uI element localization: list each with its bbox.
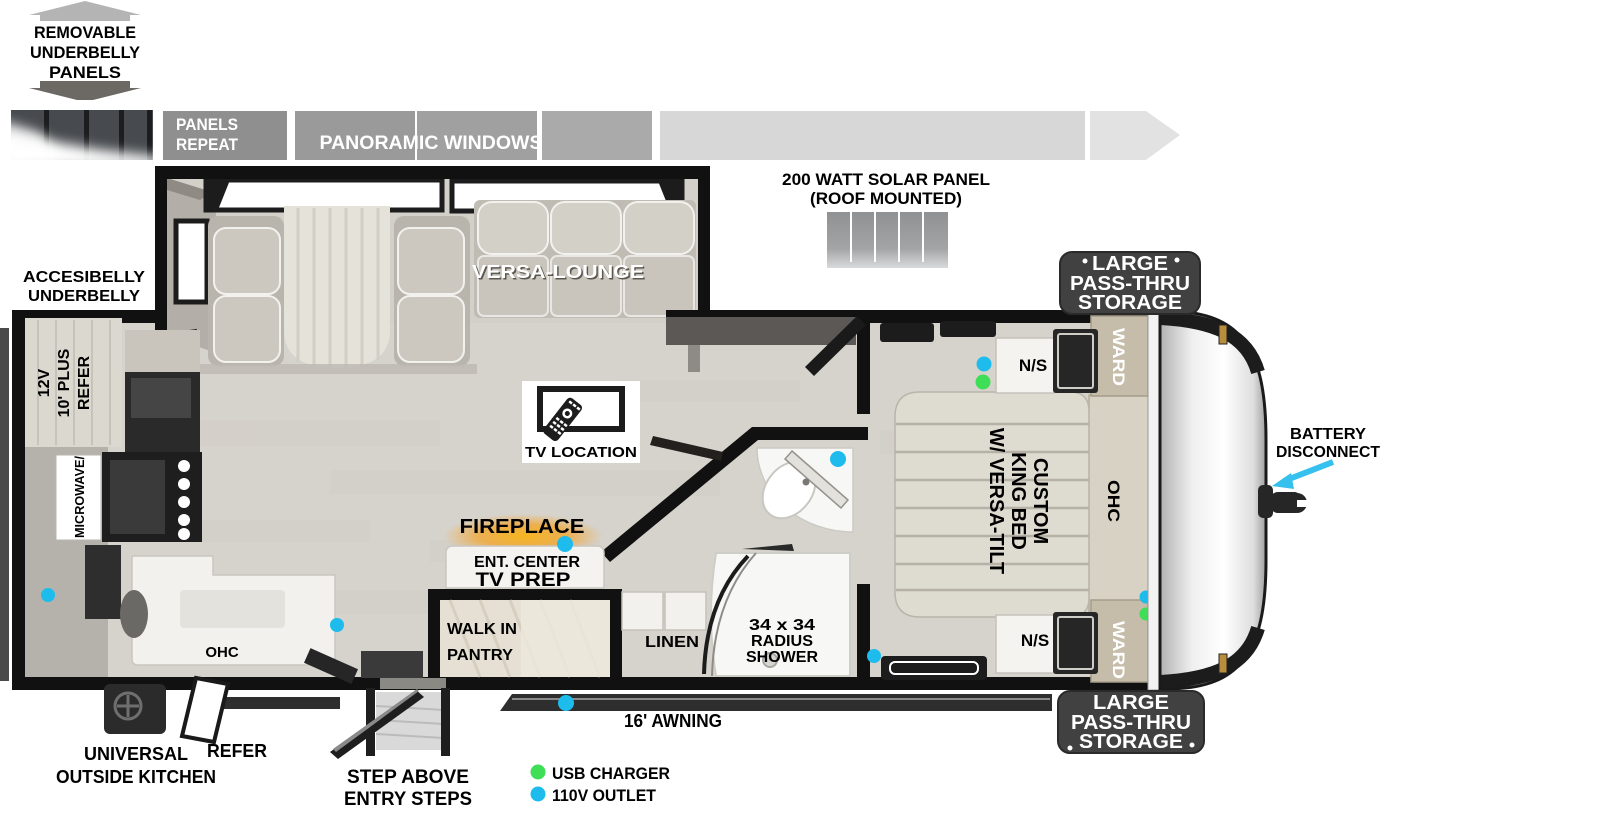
svg-text:REMOVABLE: REMOVABLE: [34, 23, 136, 42]
svg-text:PANELS: PANELS: [49, 63, 121, 82]
svg-text:ACCESIBELLY: ACCESIBELLY: [23, 269, 145, 286]
svg-text:STEP ABOVE: STEP ABOVE: [347, 767, 469, 788]
svg-text:STORAGE: STORAGE: [1079, 731, 1183, 753]
svg-text:OHC: OHC: [205, 644, 239, 661]
svg-text:200 WATT SOLAR PANEL: 200 WATT SOLAR PANEL: [782, 170, 990, 189]
svg-text:W/ VERSA-TILT: W/ VERSA-TILT: [985, 428, 1007, 574]
svg-text:UNIVERSAL: UNIVERSAL: [84, 744, 188, 764]
svg-text:LARGE: LARGE: [1093, 692, 1169, 714]
svg-text:OHC: OHC: [1104, 480, 1123, 522]
svg-text:KING BED: KING BED: [1007, 452, 1029, 550]
svg-text:ENT. CENTER: ENT. CENTER: [474, 554, 580, 571]
svg-text:PANTRY: PANTRY: [447, 647, 513, 664]
svg-text:WARD: WARD: [1109, 328, 1128, 386]
svg-text:LINEN: LINEN: [645, 634, 699, 651]
svg-text:OUTSIDE KITCHEN: OUTSIDE KITCHEN: [56, 767, 216, 787]
svg-text:RADIUS: RADIUS: [751, 633, 813, 650]
svg-text:REFER: REFER: [76, 355, 93, 410]
svg-text:DISCONNECT: DISCONNECT: [1276, 444, 1380, 461]
svg-text:16' AWNING: 16' AWNING: [624, 711, 722, 731]
svg-text:MICROWAVE/: MICROWAVE/: [72, 456, 87, 538]
svg-text:UNDERBELLY: UNDERBELLY: [28, 288, 140, 305]
svg-text:PANORAMIC WINDOWS: PANORAMIC WINDOWS: [320, 133, 543, 154]
svg-text:TV PREP: TV PREP: [476, 570, 571, 591]
svg-text:10' PLUS: 10' PLUS: [56, 348, 73, 417]
svg-text:FIREPLACE: FIREPLACE: [460, 516, 585, 538]
svg-text:LARGE: LARGE: [1092, 253, 1168, 275]
svg-text:REPEAT: REPEAT: [176, 135, 239, 154]
svg-text:USB CHARGER: USB CHARGER: [552, 764, 670, 783]
svg-text:N/S: N/S: [1019, 356, 1047, 375]
svg-text:WARD: WARD: [1109, 621, 1128, 679]
svg-text:N/S: N/S: [1021, 631, 1049, 650]
svg-text:TV LOCATION: TV LOCATION: [525, 444, 637, 461]
svg-text:BATTERY: BATTERY: [1290, 426, 1366, 443]
svg-text:ENTRY STEPS: ENTRY STEPS: [344, 789, 472, 810]
svg-text:PANELS: PANELS: [176, 115, 238, 134]
svg-text:CUSTOM: CUSTOM: [1029, 458, 1051, 544]
svg-text:REFER: REFER: [207, 741, 267, 761]
svg-text:UNDERBELLY: UNDERBELLY: [30, 43, 141, 62]
svg-text:STORAGE: STORAGE: [1078, 292, 1182, 314]
svg-text:(ROOF MOUNTED): (ROOF MOUNTED): [810, 189, 962, 208]
svg-text:SHOWER: SHOWER: [746, 649, 818, 666]
svg-text:34 x 34: 34 x 34: [749, 617, 815, 634]
svg-text:VERSA-LOUNGE: VERSA-LOUNGE: [472, 262, 644, 282]
svg-text:WALK IN: WALK IN: [447, 621, 517, 638]
svg-text:110V OUTLET: 110V OUTLET: [552, 786, 657, 805]
svg-text:12V: 12V: [36, 368, 53, 397]
